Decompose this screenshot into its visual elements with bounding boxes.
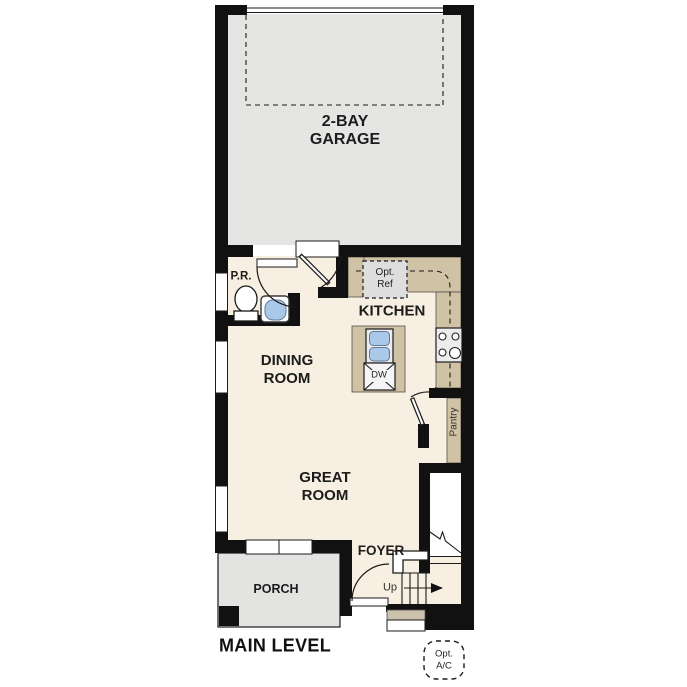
cooktop-icon — [436, 328, 462, 362]
great-room-label: GREAT ROOM — [299, 469, 350, 505]
window — [216, 341, 228, 393]
dining-room-label: DINING ROOM — [261, 352, 314, 388]
window — [216, 273, 228, 311]
wall — [443, 5, 474, 15]
powder-room-label: P.R. — [231, 270, 252, 283]
window — [279, 540, 312, 554]
window — [246, 540, 279, 554]
window — [216, 486, 228, 532]
garage-label: 2-BAY GARAGE — [310, 113, 380, 149]
front-step — [387, 620, 425, 631]
wall — [418, 424, 429, 448]
wall — [338, 245, 474, 257]
pantry-label: Pantry — [448, 408, 460, 437]
floor-plan: 2-BAY GARAGE P.R. KITCHEN DINING ROOM GR… — [0, 0, 687, 687]
dishwasher-label: DW — [371, 371, 387, 382]
toilet-icon — [234, 286, 258, 321]
optional-ac-label: Opt. A/C — [435, 649, 453, 672]
wall — [215, 245, 253, 257]
plan-title: MAIN LEVEL — [219, 636, 331, 657]
floor-plan-drawing — [0, 0, 687, 687]
wall — [288, 293, 300, 326]
front-step — [387, 610, 425, 620]
wall — [318, 287, 348, 298]
optional-ref-label: Opt. Ref — [376, 267, 395, 291]
porch-post — [219, 606, 239, 626]
kitchen-counter-left — [348, 257, 364, 297]
kitchen-label: KITCHEN — [359, 302, 426, 319]
wall — [215, 5, 247, 15]
wall — [461, 5, 474, 630]
stairwell-floor — [430, 473, 461, 556]
wall — [424, 604, 474, 630]
porch-label: PORCH — [253, 582, 298, 596]
kitchen-sink-icon — [366, 329, 393, 363]
foyer-label: FOYER — [358, 543, 405, 559]
stairs-up-label: Up — [383, 582, 397, 595]
